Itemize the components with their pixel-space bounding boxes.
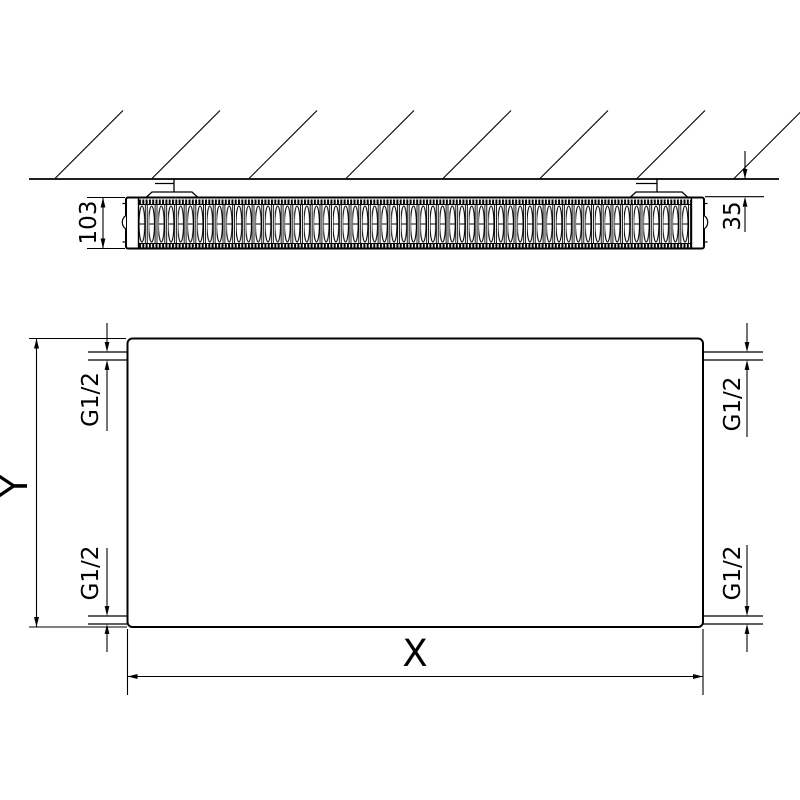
wall-bracket-left [146,179,198,198]
height-dimension-label: Y [0,474,36,498]
dimension-width-x: X [128,629,704,695]
convector-fins [139,205,692,244]
depth-dimension-label: 103 [76,201,102,245]
arrowhead-down [743,169,748,179]
radiator-cross-section [122,198,707,249]
front-view: G1/2 G1/2 G1/2 G1/2 [0,323,763,695]
dimension-connection-bottom-right: G1/2 [720,545,749,652]
dimension-connection-top-left: G1/2 [78,323,109,431]
dimension-height-y: Y [0,339,127,628]
plug-right [704,216,708,230]
wall-bracket-right [630,179,688,198]
connection-label-bottom-right: G1/2 [720,546,746,601]
dimension-connection-top-right: G1/2 [720,323,749,437]
top-view: 103 35 [29,111,800,249]
dimension-wall-gap: 35 [705,151,764,232]
connection-label-top-right: G1/2 [720,377,746,432]
connection-stub-bottom-right [703,616,763,624]
connection-stub-top-right [703,352,763,360]
radiator-panel-outline [128,339,704,628]
dimension-connection-bottom-left: G1/2 [78,546,109,652]
connection-label-bottom-left: G1/2 [78,546,104,601]
width-dimension-label: X [402,632,427,675]
technical-drawing-sheet: 103 35 [0,0,800,800]
connection-label-top-left: G1/2 [78,372,104,427]
dimension-depth: 103 [76,198,125,249]
plug-left [122,216,126,230]
wall-hatching [55,111,800,179]
radiator-orthographic-drawing: 103 35 [0,0,800,800]
connection-stub-bottom-left [88,616,128,624]
connection-stub-top-left [88,352,128,360]
wall-gap-dimension-label: 35 [720,201,746,230]
